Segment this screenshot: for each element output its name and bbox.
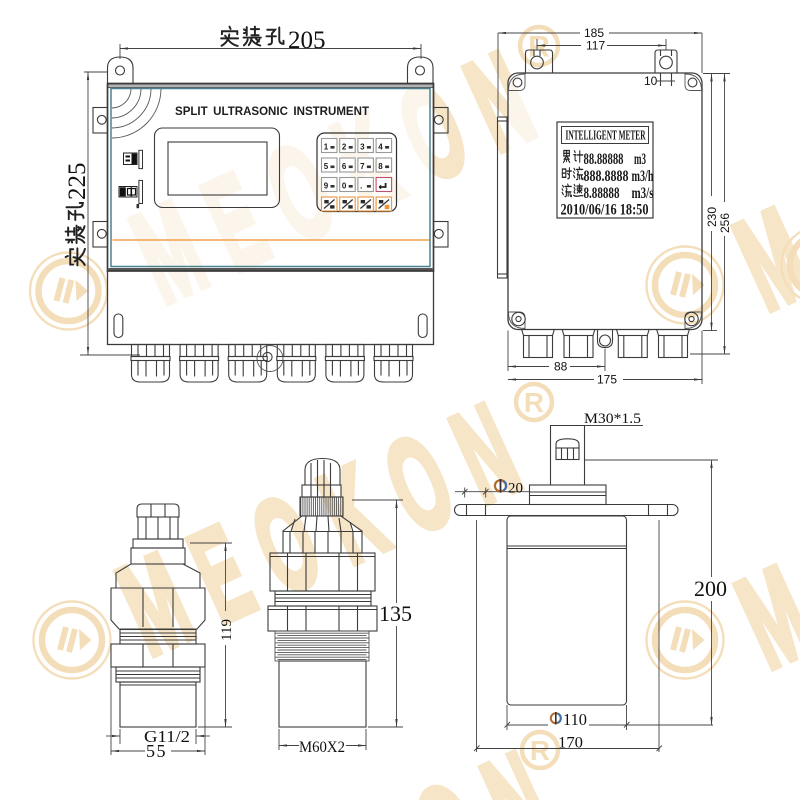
svg-text:m3: m3 (634, 151, 646, 168)
svg-text:200: 200 (694, 576, 727, 601)
svg-text:256: 256 (718, 213, 732, 233)
svg-text:225: 225 (64, 163, 91, 201)
svg-text:88.88888: 88.88888 (584, 151, 624, 168)
svg-text:R: R (524, 387, 544, 418)
svg-text:MEOKON: MEOKON (719, 381, 800, 696)
svg-text:INTELLIGENT METER: INTELLIGENT METER (566, 128, 647, 143)
svg-text:9: 9 (324, 181, 329, 190)
svg-text:10: 10 (644, 74, 658, 88)
svg-text:.: . (360, 181, 362, 190)
svg-text:55: 55 (146, 741, 167, 761)
svg-text:m3/s: m3/s (632, 185, 654, 202)
svg-text:SPLIT ULTRASONIC INSTRUMENT: SPLIT ULTRASONIC INSTRUMENT (175, 104, 369, 118)
svg-text:205: 205 (288, 27, 326, 54)
svg-text:175: 175 (597, 373, 617, 387)
svg-text:888.8888: 888.8888 (584, 168, 629, 185)
svg-text:119: 119 (219, 619, 235, 641)
svg-text:170: 170 (558, 735, 583, 752)
svg-text:4: 4 (378, 142, 383, 151)
svg-text:110: 110 (563, 710, 587, 729)
svg-text:135: 135 (379, 601, 412, 626)
svg-text:2: 2 (342, 142, 347, 151)
svg-text:M60X2: M60X2 (299, 739, 345, 756)
svg-text:0: 0 (342, 181, 347, 190)
svg-text:230: 230 (705, 207, 719, 227)
svg-text:117: 117 (586, 39, 605, 53)
svg-text:8.88888: 8.88888 (584, 185, 620, 202)
svg-text:8: 8 (378, 162, 383, 171)
svg-text:5: 5 (324, 162, 329, 171)
svg-text:2010/06/16 18:50: 2010/06/16 18:50 (561, 201, 649, 218)
svg-text:MEOKON: MEOKON (717, 23, 800, 338)
svg-text:20: 20 (508, 481, 523, 497)
svg-text:88: 88 (554, 360, 568, 374)
svg-text:R: R (530, 735, 550, 766)
svg-text:1: 1 (324, 142, 329, 151)
svg-text:3: 3 (360, 142, 365, 151)
svg-text:m3/h: m3/h (632, 168, 654, 185)
svg-text:7: 7 (360, 162, 365, 171)
svg-text:6: 6 (342, 162, 347, 171)
svg-text:M30*1.5: M30*1.5 (584, 411, 641, 427)
